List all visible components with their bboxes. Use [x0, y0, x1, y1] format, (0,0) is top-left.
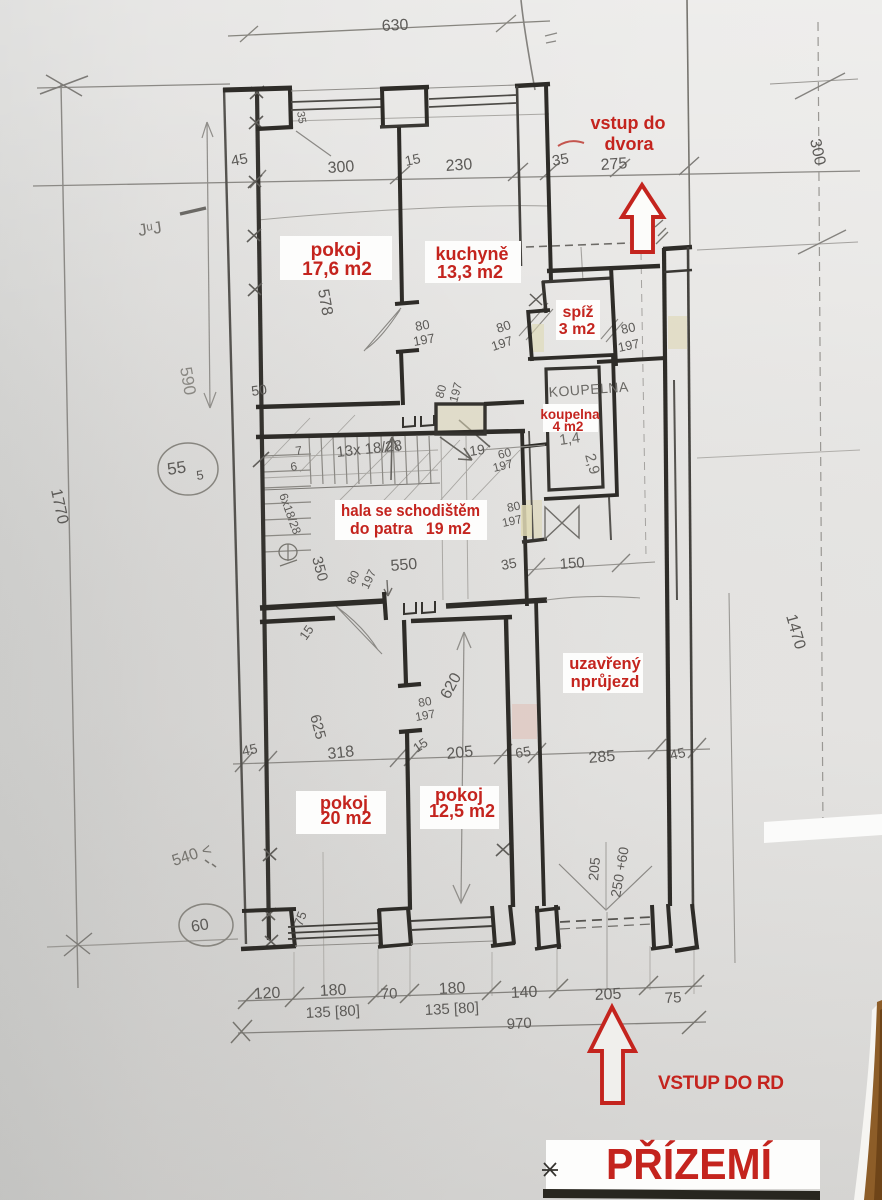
svg-text:35: 35 — [294, 110, 308, 124]
svg-text:dvora: dvora — [604, 134, 654, 154]
svg-text:PŘÍZEMÍ: PŘÍZEMÍ — [606, 1139, 774, 1189]
svg-text:205: 205 — [585, 856, 603, 881]
svg-text:285: 285 — [588, 748, 616, 767]
svg-text:kuchyně: kuchyně — [435, 244, 508, 264]
svg-text:55: 55 — [166, 458, 187, 479]
svg-text:vstup do: vstup do — [591, 113, 666, 133]
svg-text:hala se schodištěm: hala se schodištěm — [341, 501, 480, 520]
svg-text:do patra 19 m2: do patra 19 m2 — [350, 519, 471, 538]
svg-text:70: 70 — [380, 985, 398, 1003]
svg-text:135 [80]: 135 [80] — [305, 1002, 360, 1022]
svg-text:3 m2: 3 m2 — [559, 321, 596, 338]
svg-text:230: 230 — [445, 156, 473, 175]
svg-text:45: 45 — [230, 150, 249, 170]
svg-text:65: 65 — [514, 743, 532, 761]
svg-text:17,6 m2: 17,6 m2 — [302, 259, 372, 280]
svg-text:140: 140 — [510, 984, 538, 1002]
svg-text:35: 35 — [500, 554, 518, 572]
svg-text:630: 630 — [381, 17, 409, 35]
svg-text:180: 180 — [438, 980, 466, 998]
svg-text:4 m2: 4 m2 — [553, 419, 584, 434]
svg-text:205: 205 — [594, 986, 622, 1004]
svg-text:uzavřený: uzavřený — [569, 655, 641, 673]
svg-text:318: 318 — [327, 743, 355, 763]
svg-text:970: 970 — [506, 1015, 532, 1033]
svg-text:JᵘJ: JᵘJ — [137, 218, 163, 240]
svg-text:12,5 m2: 12,5 m2 — [429, 801, 495, 821]
svg-text:19: 19 — [468, 441, 486, 459]
svg-text:150: 150 — [559, 554, 585, 573]
svg-text:pokoj: pokoj — [311, 240, 362, 261]
svg-text:80: 80 — [620, 319, 637, 337]
svg-text:120: 120 — [253, 985, 281, 1003]
svg-text:550: 550 — [390, 556, 418, 575]
svg-text:60: 60 — [190, 916, 211, 936]
svg-text:75: 75 — [664, 989, 682, 1007]
svg-text:20 m2: 20 m2 — [320, 808, 371, 828]
svg-text:VSTUP DO RD: VSTUP DO RD — [658, 1073, 784, 1094]
svg-text:300: 300 — [327, 158, 355, 177]
svg-text:135 [80]: 135 [80] — [424, 999, 479, 1019]
svg-text:275: 275 — [600, 155, 628, 174]
svg-text:205: 205 — [446, 743, 474, 763]
svg-text:35: 35 — [551, 150, 570, 170]
svg-text:180: 180 — [319, 982, 347, 1000]
svg-text:13,3 m2: 13,3 m2 — [437, 262, 503, 282]
svg-text:nprůjezd: nprůjezd — [571, 673, 640, 691]
svg-text:spíž: spíž — [562, 304, 593, 321]
svg-text:50: 50 — [250, 381, 268, 399]
